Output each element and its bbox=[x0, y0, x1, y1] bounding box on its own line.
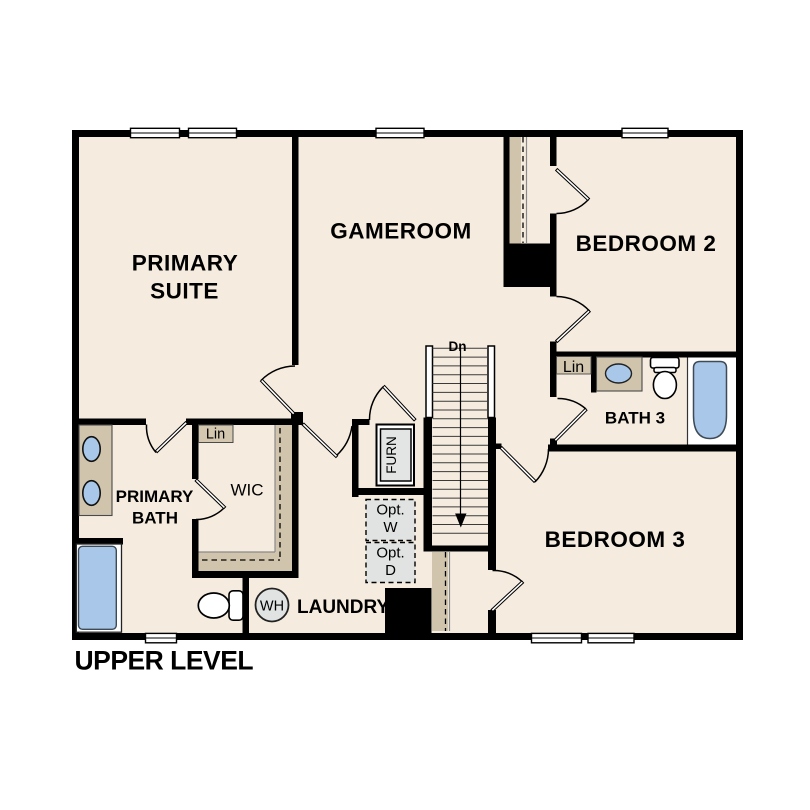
svg-text:BATH 3: BATH 3 bbox=[605, 409, 665, 428]
svg-text:UPPER LEVEL: UPPER LEVEL bbox=[75, 646, 254, 676]
svg-text:BEDROOM 3: BEDROOM 3 bbox=[545, 527, 686, 552]
svg-text:PRIMARY: PRIMARY bbox=[116, 487, 194, 506]
svg-text:WIC: WIC bbox=[230, 481, 263, 500]
svg-text:Opt.: Opt. bbox=[376, 502, 404, 519]
svg-text:SUITE: SUITE bbox=[150, 279, 219, 304]
svg-text:LAUNDRY: LAUNDRY bbox=[297, 597, 390, 618]
svg-text:FURN: FURN bbox=[384, 436, 399, 474]
svg-text:W: W bbox=[383, 519, 398, 536]
svg-text:BATH: BATH bbox=[132, 509, 178, 528]
svg-text:Dn: Dn bbox=[449, 339, 467, 354]
svg-text:BEDROOM 2: BEDROOM 2 bbox=[576, 231, 717, 256]
svg-text:WH: WH bbox=[260, 599, 284, 615]
svg-text:GAMEROOM: GAMEROOM bbox=[330, 219, 472, 244]
svg-text:Lin: Lin bbox=[563, 359, 584, 376]
svg-text:PRIMARY: PRIMARY bbox=[132, 251, 238, 276]
svg-text:Opt.: Opt. bbox=[376, 545, 404, 562]
svg-text:D: D bbox=[385, 562, 396, 579]
svg-text:Lin: Lin bbox=[206, 427, 225, 443]
